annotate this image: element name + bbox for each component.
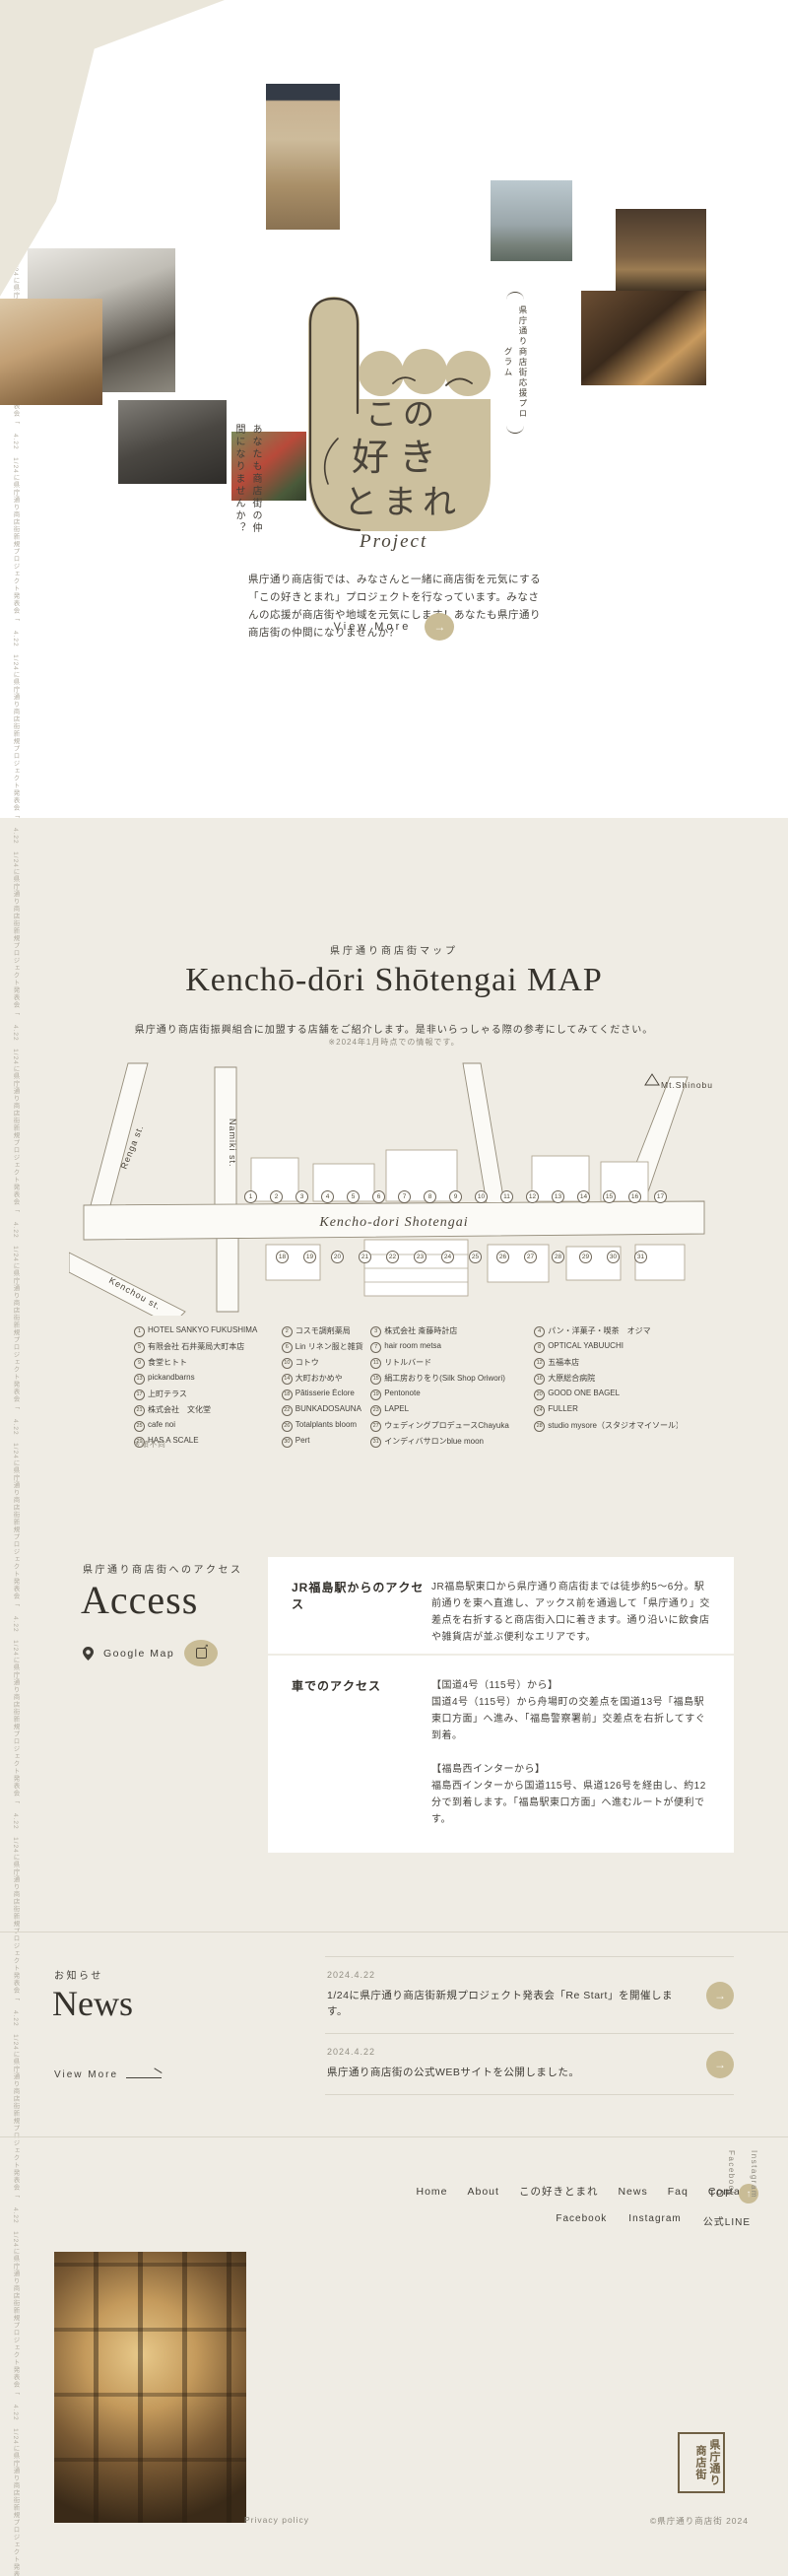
map-marker-number: 1 [244, 1190, 257, 1203]
map-marker-number: 16 [628, 1190, 641, 1203]
store-number: 11 [370, 1358, 381, 1369]
store-list-item: 22 BUNKADOSAUNA [282, 1404, 366, 1416]
access-card-car: 車でのアクセス 【国道4号（115号）から】 国道4号（115号）から舟場町の交… [268, 1656, 734, 1853]
footer-side-link[interactable]: Facebook [727, 2150, 736, 2259]
store-number: 4 [534, 1326, 545, 1337]
program-label-text: 県庁通り商店街応援プログラム [500, 304, 530, 422]
store-name: リトルバード [384, 1357, 431, 1368]
store-list-item: 11 リトルバード [370, 1357, 530, 1369]
store-name: パン・洋菓子・喫茶 オジマ [548, 1325, 650, 1336]
store-list-item: 14 大町おかめや [282, 1373, 366, 1385]
arrow-right-icon[interactable]: → [706, 2051, 734, 2078]
news-ticker-text: 4.22 1/24に県庁通り商店街新規プロジェクト発表会「Re Start」を開… [6, 2405, 20, 2576]
access-card-train: JR福島駅からのアクセス JR福島駅東口から県庁通り商店街までは徒歩約5〜6分。… [268, 1557, 734, 1654]
map-illustration: Renga st. Namiki st. Kenchou st. Mt.Shin… [69, 1059, 719, 1316]
program-label: 県庁通り商店街応援プログラム [498, 292, 532, 440]
map-marker-number: 22 [386, 1251, 399, 1263]
news-view-more[interactable]: View More [54, 2069, 162, 2080]
store-name: studio mysore（スタジオマイソール） [548, 1420, 678, 1431]
store-name: Pâtisserie Éclore [295, 1389, 355, 1397]
external-link-button[interactable] [184, 1640, 218, 1666]
store-number: 19 [370, 1390, 381, 1400]
store-number: 6 [282, 1342, 293, 1353]
catch-copy-vertical: あなたも商店街の仲間になりませんか？ [230, 424, 264, 540]
store-name: コスモ調剤薬局 [295, 1325, 351, 1336]
map-marker-number: 19 [303, 1251, 316, 1263]
hero-photo [581, 291, 706, 385]
map-section-note: ※2024年1月時点での情報です。 [0, 1037, 788, 1048]
footer-nav-link[interactable]: News [618, 2186, 647, 2198]
map-marker-number: 14 [577, 1190, 590, 1203]
map-marker-number: 4 [321, 1190, 334, 1203]
store-list-item: 17 上町テラス [134, 1389, 278, 1400]
store-list-item: 19 Pentonote [370, 1389, 530, 1400]
access-section-label: 県庁通り商店街へのアクセス [83, 1561, 243, 1576]
store-name: 大町おかめや [295, 1373, 343, 1384]
store-number: 22 [282, 1405, 293, 1416]
store-number: 7 [370, 1342, 381, 1353]
store-name: 有限会社 石井薬局大町本店 [148, 1341, 244, 1352]
store-list-item: 8 OPTICAL YABUUCHI [534, 1341, 678, 1353]
store-number: 20 [534, 1390, 545, 1400]
map-marker-number: 24 [441, 1251, 454, 1263]
store-number: 16 [534, 1374, 545, 1385]
hero-photo [0, 299, 102, 405]
map-marker-number: 26 [496, 1251, 509, 1263]
store-name: Pentonote [384, 1389, 420, 1397]
news-ticker-text: 4.22 1/24に県庁通り商店街新規プロジェクト発表会「Re Start」を開… [6, 1616, 20, 1803]
map-marker-number: 25 [469, 1251, 482, 1263]
store-number: 8 [534, 1342, 545, 1353]
store-name: コトウ [295, 1357, 319, 1368]
access-card-train-body: JR福島駅東口から県庁通り商店街までは徒歩約5〜6分。駅前通りを東へ直進し、アッ… [431, 1579, 710, 1632]
store-number: 21 [134, 1405, 145, 1416]
footer-divider [0, 2136, 788, 2137]
hero-photo [266, 84, 340, 230]
store-name: ウェディングプロデュースChayuka [384, 1420, 509, 1431]
store-list-note: ※順不同 [134, 1439, 166, 1450]
section-divider [0, 1932, 788, 1932]
store-list-item: 2 コスモ調剤薬局 [282, 1325, 366, 1337]
privacy-policy-link[interactable]: Privacy policy [244, 2515, 309, 2525]
store-number: 9 [134, 1358, 145, 1369]
store-list-item: 4 パン・洋菓子・喫茶 オジマ [534, 1325, 678, 1337]
footer-side-link[interactable]: Instagram [750, 2150, 758, 2259]
store-number: 27 [370, 1421, 381, 1432]
map-marker-number: 6 [372, 1190, 385, 1203]
store-list-item: 28 studio mysore（スタジオマイソール） [534, 1420, 678, 1432]
footer-nav-link[interactable]: この好きとまれ [519, 2184, 599, 2199]
map-marker-number: 28 [552, 1251, 564, 1263]
news-item[interactable]: 2024.4.22 県庁通り商店街の公式WEBサイトを公開しました。 → [325, 2034, 734, 2095]
logo-text-project: Project [359, 531, 427, 552]
store-list-item: 7 hair room metsa [370, 1341, 530, 1353]
store-list-item: 10 コトウ [282, 1357, 366, 1369]
news-view-more-label: View More [54, 2069, 118, 2080]
store-name: 五福本店 [548, 1357, 579, 1368]
map-marker-number: 3 [295, 1190, 308, 1203]
logo-text-tomare: とまれ [344, 485, 462, 521]
store-list-item: 3 株式会社 斎藤時計店 [370, 1325, 530, 1337]
map-marker-number: 13 [552, 1190, 564, 1203]
store-list-item: 21 株式会社 文化堂 [134, 1404, 278, 1416]
map-marker-number: 31 [634, 1251, 647, 1263]
map-marker-number: 17 [654, 1190, 667, 1203]
footer-side-vertical-links: InstagramFacebook [727, 2150, 758, 2259]
footer-window-photo [54, 2252, 246, 2523]
hero-photo [616, 209, 706, 296]
news-ticker-text: 4.22 1/24に県庁通り商店街新規プロジェクト発表会「Re Start」を開… [6, 2010, 20, 2198]
arrow-right-icon[interactable]: → [425, 613, 454, 641]
store-list-item: 18 Pâtisserie Éclore [282, 1389, 366, 1400]
store-list-item: 27 ウェディングプロデュースChayuka [370, 1420, 530, 1432]
paren-bottom-arc [506, 426, 524, 434]
map-marker-number: 27 [524, 1251, 537, 1263]
store-name: BUNKADOSAUNA [295, 1404, 361, 1413]
long-arrow-icon [126, 2071, 162, 2079]
paren-top-arc [506, 292, 524, 300]
map-marker-number: 8 [424, 1190, 436, 1203]
store-name: OPTICAL YABUUCHI [548, 1341, 624, 1350]
store-list-item: 16 大原総合病院 [534, 1373, 678, 1385]
store-list-item: 6 Lin リネン服と雑貨 [282, 1341, 366, 1353]
landmark-label-mt-shinobu: Mt.Shinobu [661, 1080, 713, 1090]
map-marker-number: 5 [347, 1190, 360, 1203]
store-number: 24 [534, 1405, 545, 1416]
hero-photo [118, 400, 227, 484]
store-name: インディバサロンblue moon [384, 1436, 484, 1447]
news-section-label: お知らせ [54, 1967, 103, 1982]
store-list-item: 23 LAPEL [370, 1404, 530, 1416]
store-name: 大原総合病院 [548, 1373, 595, 1384]
news-item[interactable]: 2024.4.22 1/24に県庁通り商店街新規プロジェクト発表会「Re Sta… [325, 1957, 734, 2034]
store-name: 株式会社 文化堂 [148, 1404, 211, 1415]
map-marker-number: 15 [603, 1190, 616, 1203]
store-number: 30 [282, 1437, 293, 1448]
access-section-title: Access [81, 1577, 198, 1623]
store-number: 14 [282, 1374, 293, 1385]
arrow-right-icon[interactable]: → [706, 1982, 734, 2009]
map-marker-number: 9 [449, 1190, 462, 1203]
store-name: cafe noi [148, 1420, 175, 1429]
footer-nav-link[interactable]: Home [416, 2186, 447, 2198]
store-list-item: 13 pickandbarns [134, 1373, 278, 1385]
hero-view-more[interactable]: View More → [295, 613, 492, 641]
mountain-icon [645, 1074, 659, 1085]
news-ticker-text: 4.22 1/24に県庁通り商店街新規プロジェクト発表会「Re Start」を開… [6, 1222, 20, 1409]
store-list-item: 5 有限会社 石井薬局大町本店 [134, 1341, 278, 1353]
access-card-train-heading: JR福島駅からのアクセス [292, 1579, 431, 1632]
store-list-item: 1 HOTEL SANKYO FUKUSHIMA [134, 1325, 278, 1337]
store-number: 12 [534, 1358, 545, 1369]
footer-nav-link[interactable]: Faq [668, 2186, 689, 2198]
news-ticker-text: 4.22 1/24に県庁通り商店街新規プロジェクト発表会「Re Start」を開… [6, 631, 20, 818]
store-name: HOTEL SANKYO FUKUSHIMA [148, 1325, 257, 1334]
map-marker-number: 30 [607, 1251, 620, 1263]
map-section-label: 県庁通り商店街マップ [0, 942, 788, 957]
hero-photo [491, 180, 572, 261]
store-number: 31 [370, 1437, 381, 1448]
shotengai-stamp-logo: 県庁通り商店街 [678, 2432, 725, 2493]
store-name: 絹工房おりをり(Silk Shop Oriwori) [384, 1373, 505, 1384]
map-pin-icon [83, 1647, 94, 1661]
news-section-title: News [52, 1983, 133, 2024]
news-ticker-text: 4.22 1/24に県庁通り商店街新規プロジェクト発表会「Re Start」を開… [6, 1813, 20, 2000]
map-marker-number: 23 [414, 1251, 427, 1263]
news-ticker-text: 4.22 1/24に県庁通り商店街新規プロジェクト発表会「Re Start」を開… [6, 1419, 20, 1606]
footer-social-link[interactable]: Facebook [556, 2213, 607, 2228]
footer-social-links: FacebookInstagram公式LINE [295, 2213, 751, 2228]
store-number: 1 [134, 1326, 145, 1337]
map-marker-number: 21 [359, 1251, 371, 1263]
store-number: 28 [534, 1421, 545, 1432]
logo-text-kono: この [365, 396, 440, 432]
news-item-title: 1/24に県庁通り商店街新規プロジェクト発表会「Re Start」を開催します。 [327, 1988, 690, 2019]
store-name: pickandbarns [148, 1373, 195, 1382]
store-list: 1 HOTEL SANKYO FUKUSHIMA 2 コスモ調剤薬局 3 株式会… [134, 1325, 666, 1448]
store-number: 18 [282, 1390, 293, 1400]
page: 4.22 1/24に県庁通り商店街新規プロジェクト発表会「Re Start」を開… [0, 0, 788, 2576]
store-number: 5 [134, 1342, 145, 1353]
map-marker-number: 12 [526, 1190, 539, 1203]
store-list-item: 12 五福本店 [534, 1357, 678, 1369]
map-section-title: Kenchō-dōri Shōtengai MAP [0, 962, 788, 999]
access-card-car-heading: 車でのアクセス [292, 1677, 431, 1831]
copyright: ©県庁通り商店街 2024 [552, 2515, 749, 2527]
external-link-icon [196, 1648, 207, 1659]
store-name: Lin リネン服と雑貨 [295, 1341, 363, 1352]
store-list-item: 9 食堂ヒトト [134, 1357, 278, 1369]
store-number: 2 [282, 1326, 293, 1337]
store-name: 株式会社 斎藤時計店 [384, 1325, 457, 1336]
footer-social-link[interactable]: Instagram [628, 2213, 681, 2228]
store-list-item: 31 インディバサロンblue moon [370, 1436, 530, 1448]
store-name: Pert [295, 1436, 310, 1445]
store-number: 15 [370, 1374, 381, 1385]
store-list-item: 26 Totalplants bloom [282, 1420, 366, 1432]
news-item-title: 県庁通り商店街の公式WEBサイトを公開しました。 [327, 2065, 690, 2080]
map-marker-number: 2 [270, 1190, 283, 1203]
store-number: 13 [134, 1374, 145, 1385]
store-list-item: 30 Pert [282, 1436, 366, 1448]
news-list: 2024.4.22 1/24に県庁通り商店街新規プロジェクト発表会「Re Sta… [325, 1956, 734, 2095]
news-ticker-text: 4.22 1/24に県庁通り商店街新規プロジェクト発表会「Re Start」を開… [6, 2207, 20, 2395]
street-label-namiki: Namiki st. [228, 1119, 237, 1168]
news-item-date: 2024.4.22 [327, 2047, 690, 2057]
news-ticker-text: 4.22 1/24に県庁通り商店街新規プロジェクト発表会「Re Start」を開… [6, 434, 20, 621]
google-map-link[interactable]: Google Map [83, 1640, 218, 1666]
store-number: 3 [370, 1326, 381, 1337]
store-number: 17 [134, 1390, 145, 1400]
store-list-item: 15 絹工房おりをり(Silk Shop Oriwori) [370, 1373, 530, 1385]
store-name: FULLER [548, 1404, 578, 1413]
map-marker-number: 11 [500, 1190, 513, 1203]
store-name: 上町テラス [148, 1389, 187, 1399]
store-name: hair room metsa [384, 1341, 441, 1350]
kono-suki-tomare-logo: この 好き とまれ Project [298, 289, 495, 553]
map-section-subtitle: 県庁通り商店街振興組合に加盟する店舗をご紹介します。是非いらっしゃる際の参考にし… [0, 1021, 788, 1036]
map-marker-number: 18 [276, 1251, 289, 1263]
store-list-item: 20 GOOD ONE BAGEL [534, 1389, 678, 1400]
store-number: 25 [134, 1421, 145, 1432]
news-ticker-text: 4.22 1/24に県庁通り商店街新規プロジェクト発表会「Re Start」を開… [6, 1025, 20, 1212]
store-name: LAPEL [384, 1404, 409, 1413]
footer-nav-link[interactable]: About [468, 2186, 499, 2198]
map-marker-number: 10 [475, 1190, 488, 1203]
access-cards: JR福島駅からのアクセス JR福島駅東口から県庁通り商店街までは徒歩約5〜6分。… [268, 1557, 734, 1853]
store-number: 10 [282, 1358, 293, 1369]
map-marker-number: 29 [579, 1251, 592, 1263]
store-name: Totalplants bloom [295, 1420, 357, 1429]
shotengai-map: Renga st. Namiki st. Kenchou st. Mt.Shin… [69, 1059, 719, 1316]
store-name: GOOD ONE BAGEL [548, 1389, 620, 1397]
road-label-kencho-dori: Kencho-dori Shotengai [318, 1215, 468, 1230]
map-marker-number: 20 [331, 1251, 344, 1263]
store-list-item: 25 cafe noi [134, 1420, 278, 1432]
news-item-date: 2024.4.22 [327, 1970, 690, 1980]
map-marker-number: 7 [398, 1190, 411, 1203]
store-name: 食堂ヒトト [148, 1357, 187, 1368]
google-map-label: Google Map [103, 1648, 174, 1660]
store-number: 23 [370, 1405, 381, 1416]
access-card-car-body: 【国道4号（115号）から】 国道4号（115号）から舟場町の交差点を国道13号… [431, 1677, 710, 1831]
store-list-item: 24 FULLER [534, 1404, 678, 1416]
logo-text-suki: 好き [352, 438, 446, 479]
store-number: 26 [282, 1421, 293, 1432]
footer-nav: HomeAboutこの好きとまれNewsFaqContact [295, 2184, 751, 2199]
view-more-label: View More [334, 621, 412, 633]
